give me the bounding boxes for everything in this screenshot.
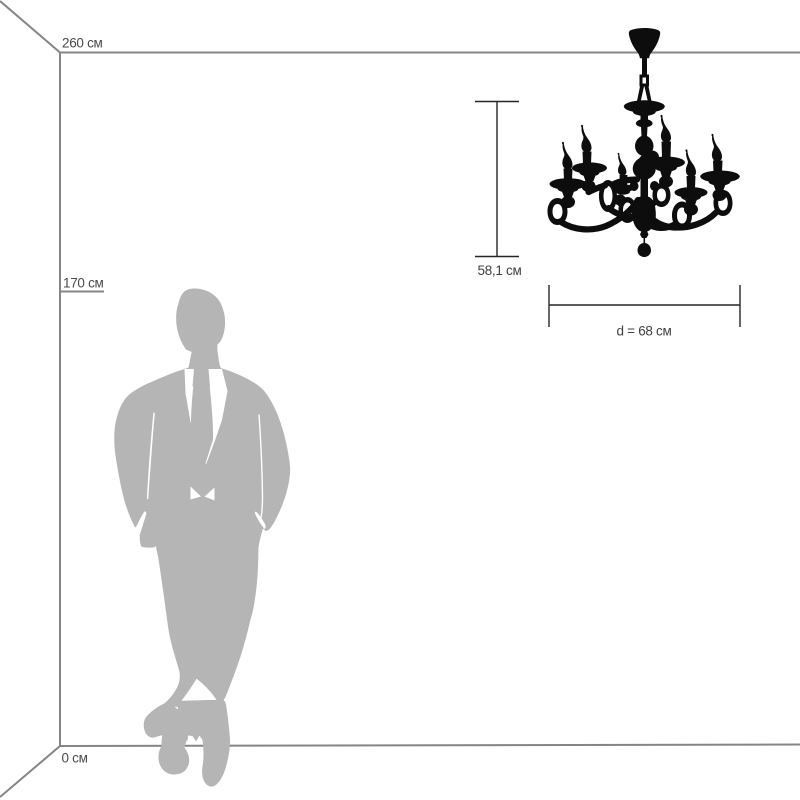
svg-text:58,1 см: 58,1 см <box>478 263 522 278</box>
svg-text:0 см: 0 см <box>62 751 88 766</box>
svg-text:260 см: 260 см <box>62 36 103 51</box>
svg-text:d = 68 см: d = 68 см <box>617 324 672 339</box>
svg-text:170 см: 170 см <box>63 276 104 291</box>
